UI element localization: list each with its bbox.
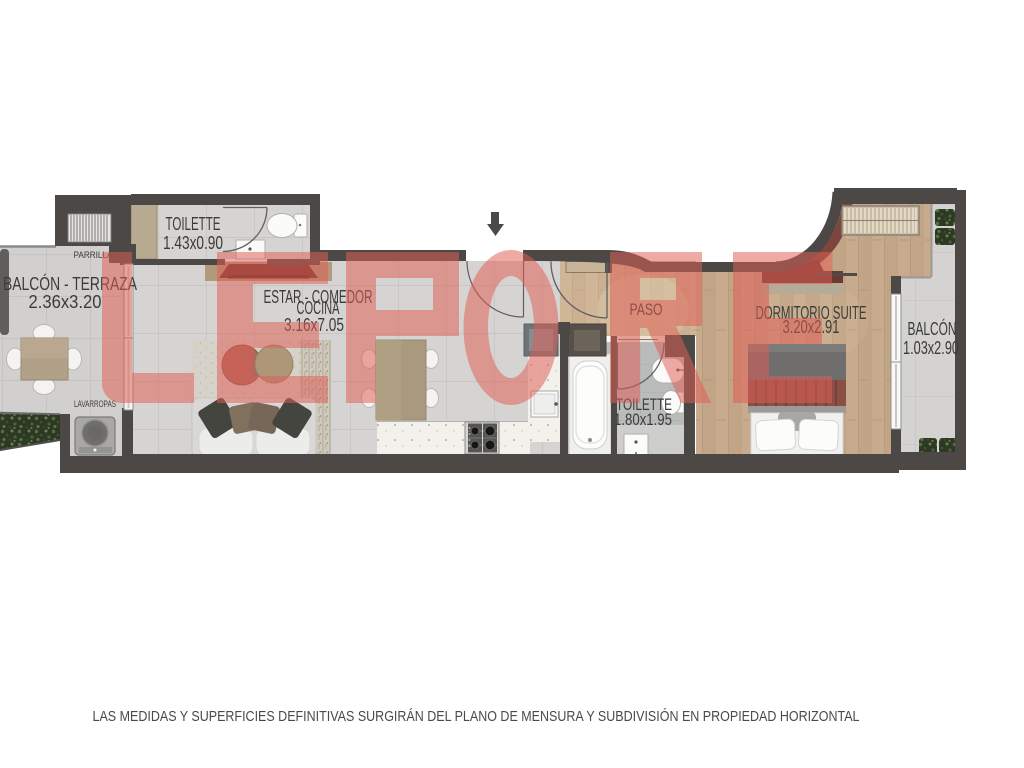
svg-text:2.36x3.20: 2.36x3.20 bbox=[29, 291, 102, 312]
svg-text:1.03x2.90: 1.03x2.90 bbox=[903, 338, 959, 358]
svg-text:LAVARROPAS: LAVARROPAS bbox=[74, 399, 116, 410]
svg-text:1.80x1.95: 1.80x1.95 bbox=[614, 411, 672, 429]
svg-text:1.43x0.90: 1.43x0.90 bbox=[163, 233, 223, 253]
svg-text:TOILETTE: TOILETTE bbox=[166, 214, 221, 234]
svg-text:LAS MEDIDAS Y SUPERFICIES DEFI: LAS MEDIDAS Y SUPERFICIES DEFINITIVAS SU… bbox=[93, 708, 860, 725]
svg-text:BALCÓN: BALCÓN bbox=[908, 318, 957, 339]
